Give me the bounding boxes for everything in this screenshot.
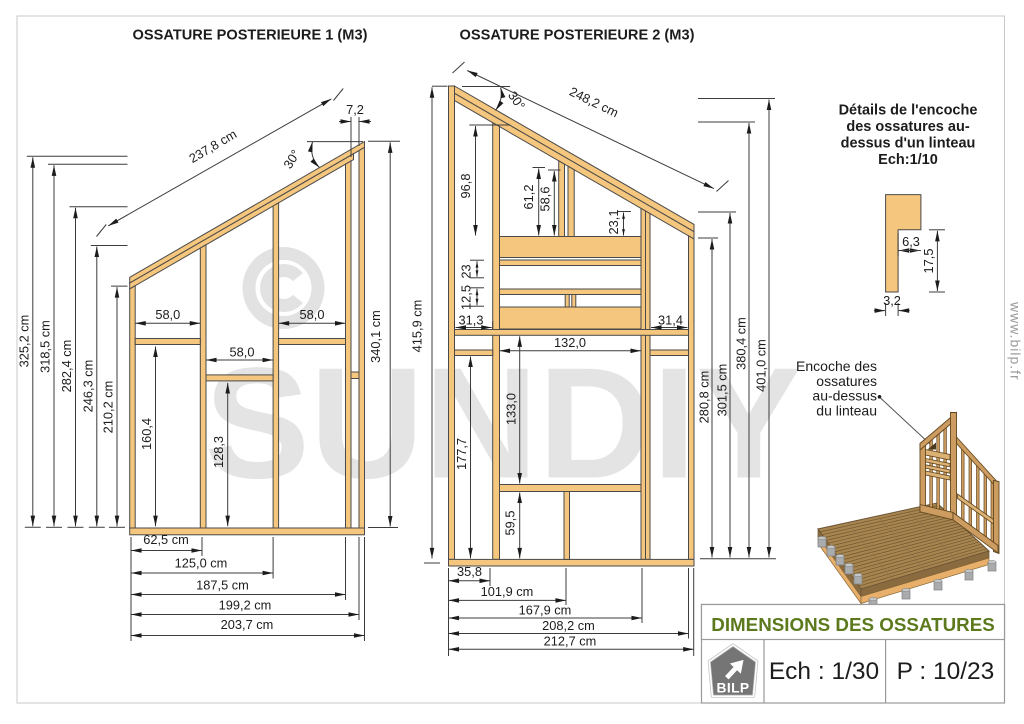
svg-text:58,0: 58,0 (230, 345, 255, 360)
svg-text:340,1 cm: 340,1 cm (368, 310, 383, 363)
svg-text:du linteau: du linteau (816, 402, 877, 418)
svg-text:246,3 cm: 246,3 cm (80, 360, 95, 413)
svg-text:125,0 cm: 125,0 cm (175, 556, 228, 571)
svg-text:415,9 cm: 415,9 cm (410, 300, 425, 353)
svg-text:31,3: 31,3 (459, 312, 484, 327)
svg-text:96,8: 96,8 (458, 174, 473, 199)
svg-text:199,2 cm: 199,2 cm (219, 598, 272, 613)
svg-text:160,4: 160,4 (139, 418, 154, 450)
svg-text:P : 10/23: P : 10/23 (897, 658, 995, 685)
svg-text:208,2 cm: 208,2 cm (542, 618, 595, 633)
svg-text:133,0: 133,0 (504, 393, 519, 425)
svg-text:31,4: 31,4 (658, 312, 683, 327)
svg-text:DIMENSIONS DES OSSATURES: DIMENSIONS DES OSSATURES (711, 614, 995, 635)
svg-text:187,5 cm: 187,5 cm (196, 577, 249, 592)
svg-text:59,5: 59,5 (503, 511, 518, 536)
svg-text:17,5: 17,5 (921, 249, 936, 274)
svg-text:23: 23 (459, 264, 474, 278)
svg-text:58,0: 58,0 (155, 307, 180, 322)
svg-text:401,0 cm: 401,0 cm (753, 339, 768, 392)
svg-text:132,0: 132,0 (554, 335, 586, 350)
svg-text:318,5 cm: 318,5 cm (38, 320, 53, 373)
svg-text:www.bilp.fr: www.bilp.fr (1008, 301, 1024, 381)
svg-text:7,2: 7,2 (346, 102, 364, 117)
svg-text:128,3: 128,3 (211, 436, 226, 468)
svg-text:203,7 cm: 203,7 cm (221, 617, 274, 632)
svg-text:OSSATURE POSTERIEURE 2 (M3): OSSATURE POSTERIEURE 2 (M3) (460, 28, 695, 44)
svg-text:212,7 cm: 212,7 cm (544, 633, 597, 648)
svg-text:dessus d'un linteau: dessus d'un linteau (841, 136, 976, 152)
svg-text:BILP: BILP (716, 681, 749, 696)
svg-text:177,7: 177,7 (454, 438, 469, 470)
svg-text:Détails de l'encoche: Détails de l'encoche (839, 103, 978, 119)
svg-text:au-dessus: au-dessus (812, 388, 877, 404)
svg-text:58,6: 58,6 (537, 187, 552, 212)
svg-text:12,5: 12,5 (459, 285, 474, 310)
svg-text:61,2: 61,2 (521, 185, 536, 210)
svg-text:280,8 cm: 280,8 cm (696, 371, 711, 424)
svg-text:325,2 cm: 325,2 cm (16, 315, 31, 368)
svg-text:Ech:1/10: Ech:1/10 (878, 152, 938, 168)
svg-text:35,8: 35,8 (457, 564, 482, 579)
svg-text:OSSATURE POSTERIEURE 1 (M3): OSSATURE POSTERIEURE 1 (M3) (133, 28, 368, 44)
svg-text:des ossatures au-: des ossatures au- (846, 119, 969, 135)
svg-text:23,1: 23,1 (606, 210, 621, 235)
svg-text:301,5 cm: 301,5 cm (714, 364, 729, 417)
svg-text:380,4 cm: 380,4 cm (733, 317, 748, 370)
svg-text:58,0: 58,0 (300, 307, 325, 322)
svg-text:101,9 cm: 101,9 cm (481, 584, 534, 599)
svg-text:210,2 cm: 210,2 cm (101, 381, 116, 434)
svg-text:167,9 cm: 167,9 cm (519, 602, 572, 617)
svg-text:62,5 cm: 62,5 cm (143, 532, 189, 547)
svg-text:Ech : 1/30: Ech : 1/30 (769, 658, 879, 685)
svg-text:Encoche des: Encoche des (796, 358, 877, 374)
svg-text:6,3: 6,3 (902, 234, 920, 249)
svg-text:282,4 cm: 282,4 cm (59, 340, 74, 393)
svg-text:ossatures: ossatures (816, 373, 877, 389)
svg-text:3,2: 3,2 (883, 293, 901, 308)
